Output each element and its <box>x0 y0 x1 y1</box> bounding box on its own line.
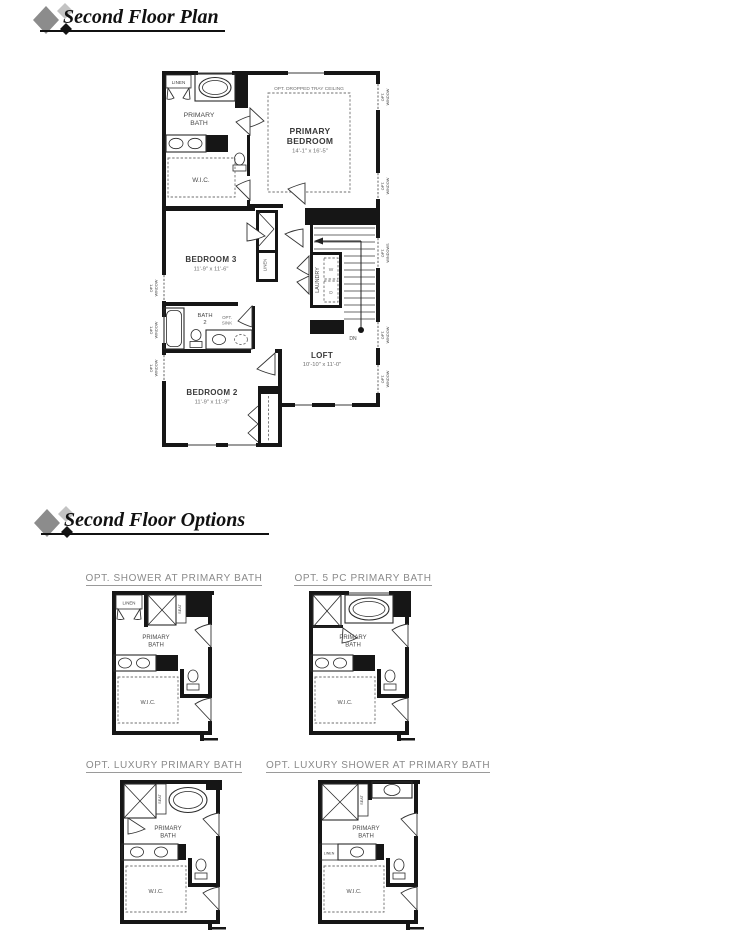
shower: SEAT <box>322 784 368 820</box>
window <box>349 591 389 595</box>
walk-in-closet: W.I.C. <box>118 677 178 723</box>
seat-label: SEAT <box>360 795 364 805</box>
svg-text:PRIMARY: PRIMARY <box>142 635 169 641</box>
section-title-second-floor-options: Second Floor Options <box>64 509 245 532</box>
linen-label: LINEN <box>172 80 186 85</box>
svg-text:WINDOW: WINDOW <box>155 321 159 338</box>
svg-text:2: 2 <box>203 320 206 326</box>
primary-bath-label: PRIMARY BATH <box>352 826 379 840</box>
svg-text:OPT.: OPT. <box>381 182 385 190</box>
shower: SEAT <box>148 595 186 625</box>
bath2: BATH 2 OPT. SINK <box>164 306 252 349</box>
svg-text:OPT.: OPT. <box>150 326 154 334</box>
bedroom2: BEDROOM 2 11'-9" x 11'-9" <box>186 353 275 442</box>
option4-luxury-shower-at-primary-bath-drawing: SEAT PRIMARY BATH LINEN W.I.C. <box>308 774 434 932</box>
title-underline <box>40 30 225 32</box>
svg-text:BEDROOM 3: BEDROOM 3 <box>185 255 236 264</box>
bedroom-door <box>288 183 305 204</box>
svg-text:PRIMARY: PRIMARY <box>339 635 366 641</box>
linen-closet: LINEN <box>166 75 191 99</box>
option3-luxury-primary-bath-drawing: SEAT PRIMARY BATH W.I.C. <box>110 774 236 932</box>
svg-text:OPT.: OPT. <box>381 375 385 383</box>
linen-label: LINEN <box>123 601 136 606</box>
double-vanity <box>114 655 156 671</box>
bath2-door <box>238 306 252 327</box>
opt-window-label: OPT. WINDOW OPT. WINDOW OPT. WINDOWS OPT… <box>381 88 390 387</box>
stair-direction-arrow <box>314 238 323 245</box>
svg-text:WINDOW: WINDOW <box>155 359 159 376</box>
section-title-second-floor-plan: Second Floor Plan <box>63 6 219 29</box>
double-vanity <box>311 655 353 671</box>
laundry-closet: LAUNDRY W D <box>297 256 338 302</box>
svg-text:14'-1" x 16'-5": 14'-1" x 16'-5" <box>292 149 328 155</box>
bedroom3: BEDROOM 3 11'-9" x 11'-6" LINEN <box>185 212 303 273</box>
walk-in-closet: W.I.C. <box>315 677 375 723</box>
bathtub <box>345 595 393 623</box>
primary-bedroom: OPT. DROPPED TRAY CEILING PRIMARY BEDROO… <box>268 86 350 204</box>
walk-in-closet: W.I.C. <box>324 866 384 912</box>
svg-text:WINDOW: WINDOW <box>386 370 390 387</box>
wic-label: W.I.C. <box>149 889 164 895</box>
svg-text:WINDOWS: WINDOWS <box>386 243 390 263</box>
svg-text:OPT.: OPT. <box>222 315 232 320</box>
toilet <box>187 670 199 690</box>
bifold-door <box>248 406 258 442</box>
wic-label: W.I.C. <box>141 700 156 706</box>
linen-closet: LINEN <box>320 844 338 860</box>
svg-text:BATH: BATH <box>190 120 208 127</box>
svg-text:WINDOW: WINDOW <box>386 88 390 105</box>
loft: LOFT 10'-10" x 11'-0" <box>303 351 341 368</box>
hall-linen-label: LINEN <box>263 259 268 271</box>
svg-text:BATH: BATH <box>345 643 361 649</box>
option1-title-wrap: OPT. SHOWER AT PRIMARY BATH <box>78 568 270 586</box>
seat-label: SEAT <box>158 794 162 804</box>
option1-shower-at-primary-bath-drawing: LINEN SEAT PRIMARY BATH W.I.C. <box>104 585 226 743</box>
svg-text:OPT.: OPT. <box>150 364 154 372</box>
wic-label: W.I.C. <box>347 889 362 895</box>
linen-closet: LINEN <box>116 595 142 620</box>
shower-door <box>128 818 145 834</box>
laundry-label: LAUNDRY <box>315 267 321 293</box>
tray-ceiling-label: OPT. DROPPED TRAY CEILING <box>274 86 344 92</box>
primary-bath-label: PRIMARY BATH <box>154 826 181 840</box>
toilet <box>195 859 207 879</box>
toilet <box>393 859 405 879</box>
double-vanity <box>166 135 206 152</box>
svg-text:PRIMARY: PRIMARY <box>154 826 181 832</box>
svg-text:BATH: BATH <box>148 643 164 649</box>
primary-bath-label: PRIMARY BATH <box>184 112 215 127</box>
option2-5pc-primary-bath-drawing: PRIMARY BATH W.I.C. <box>301 585 423 743</box>
svg-text:OPT.: OPT. <box>381 331 385 339</box>
toilet <box>191 330 201 341</box>
svg-text:WINDOW: WINDOW <box>155 279 159 296</box>
svg-text:BEDROOM 2: BEDROOM 2 <box>186 388 237 397</box>
svg-text:BATH: BATH <box>197 313 212 319</box>
option3-title-wrap: OPT. LUXURY PRIMARY BATH <box>68 755 260 773</box>
svg-text:WINDOW: WINDOW <box>386 326 390 343</box>
svg-text:BEDROOM: BEDROOM <box>287 136 334 146</box>
svg-text:PRIMARY: PRIMARY <box>290 126 331 136</box>
second-floor-plan-drawing: LINEN PRIMARY BATH W.I.C. OPT. DROPPED T… <box>148 64 392 459</box>
down-label: DN <box>349 336 357 342</box>
svg-text:OPT.: OPT. <box>381 93 385 101</box>
walls <box>120 780 226 930</box>
title-underline <box>41 533 269 535</box>
optional-sink <box>235 335 248 345</box>
wic-label: W.I.C. <box>192 177 210 184</box>
svg-text:WINDOW: WINDOW <box>386 177 390 194</box>
seat-label: SEAT <box>178 604 182 614</box>
option4-title-wrap: OPT. LUXURY SHOWER AT PRIMARY BATH <box>266 755 476 773</box>
svg-text:BATH: BATH <box>358 834 374 840</box>
option4-title: OPT. LUXURY SHOWER AT PRIMARY BATH <box>266 760 490 773</box>
svg-text:D: D <box>329 290 333 296</box>
svg-text:LOFT: LOFT <box>311 351 333 360</box>
option2-title-wrap: OPT. 5 PC PRIMARY BATH <box>267 568 459 586</box>
double-vanity <box>122 844 178 860</box>
svg-text:OPT.: OPT. <box>150 284 154 292</box>
svg-text:SINK: SINK <box>222 321 232 326</box>
svg-text:PRIMARY: PRIMARY <box>352 826 379 832</box>
bathtub <box>169 788 207 813</box>
svg-text:W: W <box>329 267 334 273</box>
bedroom2-door <box>257 353 275 375</box>
bathtub <box>195 74 235 101</box>
svg-text:11'-9" x 11'-9": 11'-9" x 11'-9" <box>195 400 230 406</box>
svg-text:OPT.: OPT. <box>381 249 385 257</box>
floorplan-page: { "headers": { "plan": "Second Floor Pla… <box>0 0 745 943</box>
wic-label: W.I.C. <box>338 700 353 706</box>
walk-in-closet: W.I.C. <box>168 158 235 197</box>
walk-in-closet: W.I.C. <box>126 866 186 912</box>
svg-text:11'-9" x 11'-6": 11'-9" x 11'-6" <box>194 267 229 273</box>
linen-label: LINEN <box>324 852 335 856</box>
svg-text:BATH: BATH <box>160 834 176 840</box>
toilet <box>384 670 396 690</box>
svg-text:PRIMARY: PRIMARY <box>184 112 215 119</box>
vanity <box>338 844 376 860</box>
corner-vanity <box>372 782 412 798</box>
option3-title: OPT. LUXURY PRIMARY BATH <box>86 760 242 773</box>
window <box>188 403 352 447</box>
primary-bath-label: PRIMARY BATH <box>142 635 169 649</box>
svg-text:10'-10" x 11'-0": 10'-10" x 11'-0" <box>303 362 341 368</box>
opt-window-label: OPT. WINDOW OPT. WINDOW OPT. WINDOW <box>150 279 159 376</box>
